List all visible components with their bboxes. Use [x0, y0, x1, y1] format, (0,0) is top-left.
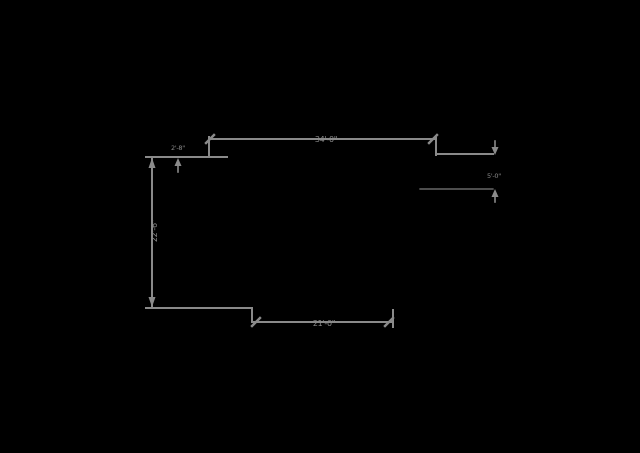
left-dimension-top-arrow	[149, 158, 156, 168]
dimension-drawing: 34'-0" 2'-8" 22'-6" 21'-0" 5'-0	[0, 0, 640, 453]
left-dimension-bottom-arrow	[149, 297, 156, 307]
left-small-dimension-label: 2'-8"	[171, 144, 185, 152]
top-dimension-label: 34'-0"	[315, 135, 337, 144]
left-dimension-label: 22'-6"	[150, 220, 159, 242]
right-small-dimension-label: 5'-0"	[487, 172, 501, 180]
bottom-dimension-label: 21'-0"	[313, 319, 335, 328]
cad-canvas[interactable]: 34'-0" 2'-8" 22'-6" 21'-0" 5'-0	[0, 0, 640, 453]
drawing-layer: 34'-0" 2'-8" 22'-6" 21'-0" 5'-0	[146, 135, 501, 328]
